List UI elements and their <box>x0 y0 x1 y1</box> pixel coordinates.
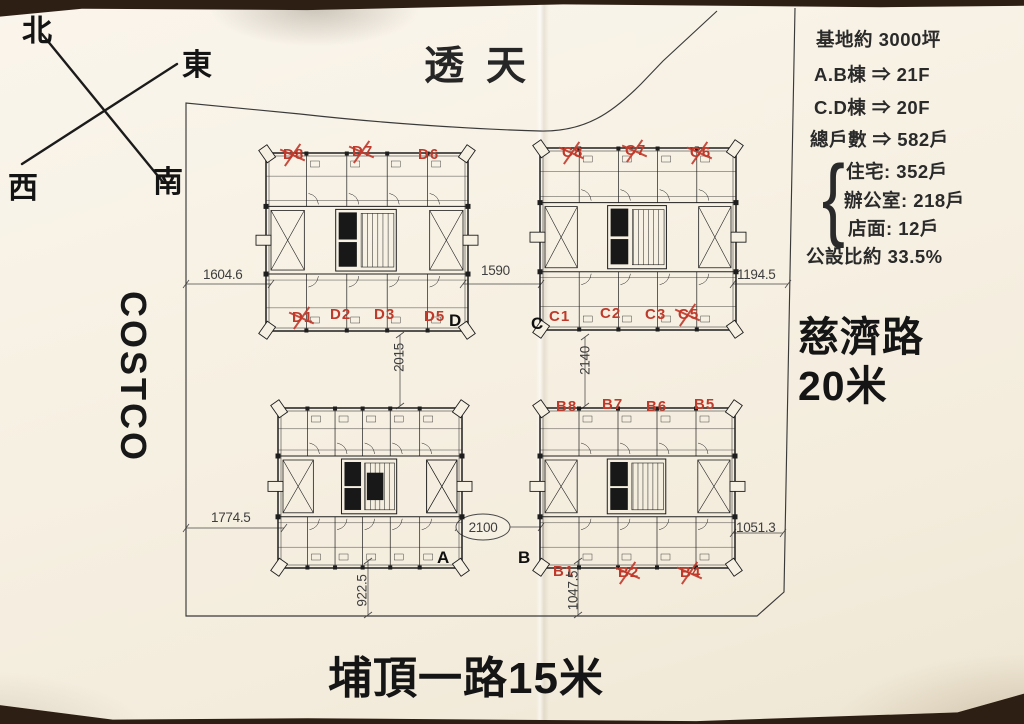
unit-label-C8: C8 <box>562 144 583 161</box>
dimension-2140: 2140 <box>578 343 593 379</box>
unit-label-B8: B8 <box>556 398 577 415</box>
note-ab-floors: A.B棟 ⇒ 21F <box>814 61 930 87</box>
bottom-road-label: 埔頂一路15米 <box>328 642 604 706</box>
note-residential: 住宅: 352戶 <box>846 158 948 184</box>
unit-label-C3: C3 <box>645 306 666 323</box>
unit-label-C7: C7 <box>625 142 646 159</box>
costco-label: COSTCO <box>112 291 154 463</box>
building-letter-C: C <box>531 314 543 334</box>
compass-east-label: 東 <box>182 40 212 84</box>
unit-label-D1: D1 <box>292 309 313 326</box>
unit-label-B4: B4 <box>680 564 701 581</box>
note-site-area: 基地約 3000坪 <box>816 26 941 52</box>
unit-label-C2: C2 <box>600 305 621 322</box>
dimension-2100: 2100 <box>461 520 505 535</box>
note-public-ratio: 公設比約 33.5% <box>806 243 943 269</box>
note-cd-floors: C.D棟 ⇒ 20F <box>814 94 930 120</box>
note-brace: { <box>822 152 845 244</box>
unit-label-B7: B7 <box>602 396 623 413</box>
unit-label-B6: B6 <box>646 398 667 415</box>
dimension-1590: 1590 <box>481 263 510 278</box>
unit-label-D7: D7 <box>352 143 373 160</box>
building-letter-D: D <box>449 311 461 331</box>
unit-label-C5: C5 <box>678 306 699 323</box>
dimension-1194-5: 1194.5 <box>737 267 776 282</box>
compass-south-label: 南 <box>153 157 183 201</box>
unit-label-D8: D8 <box>283 146 304 163</box>
dimension-1051-3: 1051.3 <box>736 520 776 535</box>
top-area-label: 透天 <box>424 33 548 91</box>
unit-label-C1: C1 <box>549 308 570 325</box>
building-letter-B: B <box>518 548 530 568</box>
unit-label-D3: D3 <box>374 306 395 323</box>
right-road-width: 20米 <box>798 352 888 412</box>
unit-label-B2: B2 <box>618 564 639 581</box>
compass-north-label: 北 <box>22 6 52 50</box>
note-shop: 店面: 12戶 <box>848 215 939 241</box>
note-office: 辦公室: 218戶 <box>844 187 965 213</box>
unit-label-B5: B5 <box>694 396 715 413</box>
unit-label-D5: D5 <box>424 308 445 325</box>
compass-west-label: 西 <box>8 163 38 207</box>
dimension-1774-5: 1774.5 <box>211 510 251 525</box>
dimension-1604-6: 1604.6 <box>203 267 243 282</box>
dimension-922-5: 922.5 <box>355 569 370 613</box>
dimension-2015: 2015 <box>392 340 407 376</box>
unit-label-D2: D2 <box>330 306 351 323</box>
unit-label-D6: D6 <box>418 146 439 163</box>
dimension-1047-5: 1047.5 <box>566 565 581 617</box>
unit-label-C6: C6 <box>690 144 711 161</box>
site-plan-photo: 北 東 西 南 透天 COSTCO 慈濟路 20米 埔頂一路15米 基地約 30… <box>0 0 1024 724</box>
building-letter-A: A <box>437 548 449 568</box>
